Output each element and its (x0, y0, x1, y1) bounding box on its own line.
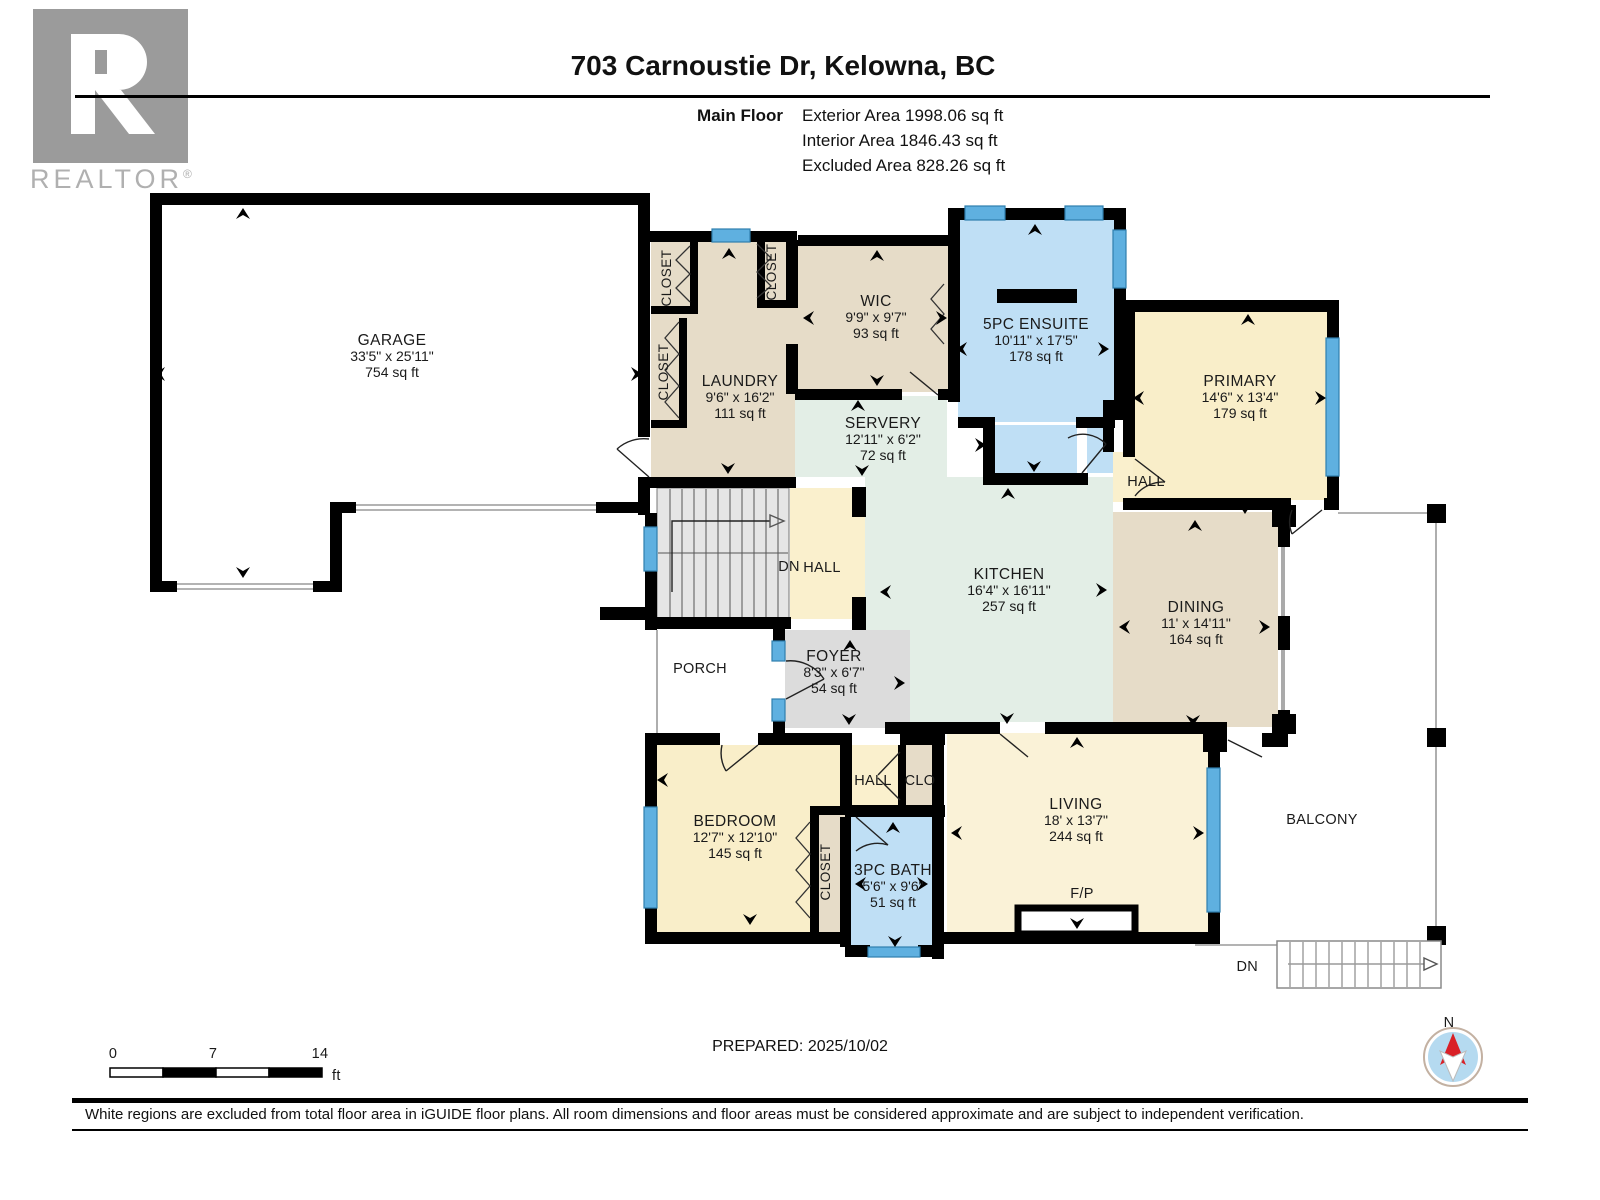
walls-shape (786, 344, 798, 394)
walls-shape (1103, 400, 1114, 452)
walls-shape (798, 235, 950, 246)
room-label-bedroom-shape: BEDROOM (694, 813, 777, 830)
room-label-servery-shape: SERVERY (845, 415, 921, 432)
walls-shape (638, 193, 650, 437)
room-label-servery-shape: 72 sq ft (860, 447, 906, 463)
walls-shape (1278, 616, 1290, 650)
label-dn-balcony: DN (1236, 959, 1258, 975)
walls-shape (845, 805, 945, 817)
scale-bar-shape (163, 1068, 216, 1077)
realtor-logo-text: REALTOR® (30, 164, 196, 195)
walls-shape (795, 389, 902, 400)
room-label-wic-shape: WIC (860, 293, 891, 310)
prepared-date: PREPARED: 2025/10/02 (0, 1038, 1600, 1056)
walls-shape (1272, 714, 1296, 734)
walls-shape (852, 597, 866, 630)
walls-shape (645, 477, 796, 488)
room-label-laundry-shape: 9'6" x 16'2" (706, 389, 775, 405)
room-label-foyer: FOYER 8'3" x 6'7" 54 sq ft (803, 648, 864, 696)
walls-shape (1208, 910, 1220, 944)
room-label-living-shape: 244 sq ft (1049, 828, 1103, 844)
walls-shape (150, 193, 650, 205)
walls-shape (885, 722, 1000, 734)
walls-shape (600, 607, 657, 620)
floor-label: Main Floor (483, 106, 783, 126)
walls-shape (1123, 498, 1291, 510)
room-label-primary-shape: PRIMARY (1203, 373, 1276, 390)
scale-bar-shape: ft (332, 1068, 341, 1084)
walls-shape (786, 240, 798, 302)
label-closet: CLOSET (659, 249, 674, 306)
room-label-bath-shape: 51 sq ft (870, 894, 916, 910)
scale-bar-shape (216, 1068, 269, 1077)
label-dn: DN (778, 559, 800, 575)
walls-shape (758, 733, 843, 745)
scale-bar-shape (110, 1068, 163, 1077)
walls-shape (1262, 733, 1288, 747)
realtor-logo-text-shape: REALTOR (30, 164, 183, 194)
registered-mark: ® (183, 167, 196, 181)
label-fireplace: F/P (1070, 886, 1093, 902)
walls-shape (651, 420, 687, 428)
walls-shape (1114, 208, 1126, 232)
label-closet: CLOSET (764, 243, 779, 300)
label-clo: CLO (905, 773, 936, 789)
walls-shape (150, 193, 162, 592)
window (1207, 768, 1220, 912)
footer-rule (72, 1098, 1528, 1103)
walls-shape (645, 617, 791, 629)
walls-shape (342, 502, 356, 513)
room-porch (657, 630, 775, 733)
walls-shape (1003, 208, 1067, 220)
label-porch: PORCH (673, 661, 727, 677)
room-label-bedroom-shape: 12'7" x 12'10" (693, 829, 778, 845)
label-hall-upper: HALL (1127, 474, 1164, 490)
walls-shape (773, 721, 785, 733)
room-label-primary-shape: 179 sq ft (1213, 405, 1267, 421)
walls-shape (948, 208, 960, 402)
label-balcony: BALCONY (1286, 812, 1357, 828)
window (1065, 206, 1103, 220)
room-label-ensuite-shape: 10'11" x 17'5" (994, 332, 1078, 348)
room-label-garage-shape: 754 sq ft (365, 364, 419, 380)
walls-shape (679, 318, 687, 424)
walls-shape (1281, 547, 1285, 616)
label-hall-stairs: HALL (803, 560, 840, 576)
footer-rule-bottom (72, 1129, 1528, 1131)
walls-shape (330, 502, 342, 592)
page-title: 703 Carnoustie Dr, Kelowna, BC (0, 50, 1566, 82)
disclaimer-text: White regions are excluded from total fl… (85, 1106, 1525, 1123)
walls-shape (845, 945, 870, 957)
window (644, 527, 657, 571)
realtor-logo-icon (33, 9, 188, 163)
label-closet: CLOSET (818, 843, 833, 900)
room-label-living-shape: LIVING (1049, 796, 1102, 813)
walls-shape (840, 817, 851, 947)
walls-shape (983, 473, 1088, 485)
room-label-dining-shape: 164 sq ft (1169, 631, 1223, 647)
walls-shape (852, 487, 866, 517)
walls-shape (1123, 300, 1339, 312)
interior-area-stat: Interior Area 1846.43 sq ft (802, 131, 998, 151)
room-label-kitchen-shape: KITCHEN (974, 566, 1045, 583)
exterior-area-stat: Exterior Area 1998.06 sq ft (802, 106, 1003, 126)
title-underline (75, 95, 1490, 98)
window (712, 229, 750, 242)
dining-balcony-door (1228, 740, 1262, 757)
window (644, 807, 657, 908)
walls-shape (1208, 733, 1220, 770)
room-label-kitchen-shape: 16'4" x 16'11" (967, 582, 1051, 598)
walls-shape (1324, 498, 1339, 510)
room-label-dining: DINING 11' x 14'11" 164 sq ft (1161, 599, 1231, 647)
room-label-laundry-shape: LAUNDRY (702, 373, 779, 390)
walls-shape (1327, 300, 1339, 340)
label-hall-lower: HALL (854, 773, 891, 789)
room-label-wic-shape: 93 sq ft (853, 325, 899, 341)
fireplace (1018, 908, 1135, 934)
walls-shape (932, 733, 944, 959)
walls-shape (645, 932, 847, 944)
room-label-laundry-shape: 111 sq ft (714, 405, 766, 421)
excluded-area-stat: Excluded Area 828.26 sq ft (802, 156, 1005, 176)
room-label-living-shape: 18' x 13'7" (1044, 812, 1108, 828)
room-label-primary-shape: 14'6" x 13'4" (1202, 389, 1279, 405)
floor-plan-page: GARAGE 33'5" x 25'11" 754 sq ft LAUNDRY … (0, 0, 1600, 1200)
room-label-foyer-shape: 54 sq ft (811, 680, 857, 696)
walls-shape (1272, 505, 1296, 527)
window (772, 641, 785, 661)
room-label-ensuite-shape: 5PC ENSUITE (983, 316, 1089, 333)
walls-shape (645, 745, 657, 809)
garage-doors-shape (356, 502, 596, 513)
realtor-logo-icon-shape-shape (71, 34, 95, 134)
room-label-ensuite-shape: 178 sq ft (1009, 348, 1063, 364)
room-label-servery-shape: 12'11" x 6'2" (845, 431, 921, 447)
room-label-kitchen-shape: 257 sq ft (982, 598, 1036, 614)
window (868, 947, 920, 957)
room-label-living: LIVING 18' x 13'7" 244 sq ft (1044, 796, 1108, 844)
room-label-garage-shape: 33'5" x 25'11" (350, 348, 434, 364)
window (772, 699, 785, 721)
floor-plan: GARAGE 33'5" x 25'11" 754 sq ft LAUNDRY … (0, 0, 1600, 1200)
room-label-wic-shape: 9'9" x 9'7" (845, 309, 906, 325)
room-label-dining-shape: DINING (1168, 599, 1225, 616)
walls-shape (1045, 722, 1205, 734)
garage-doors-shape (177, 581, 313, 592)
walls-shape (1123, 311, 1135, 457)
balcony-post (1427, 728, 1446, 747)
room-garage (160, 205, 640, 580)
room-label-garage-shape: GARAGE (358, 332, 427, 349)
walls-shape (645, 231, 714, 242)
balcony-post (1427, 504, 1446, 523)
room-label-dining-shape: 11' x 14'11" (1161, 615, 1231, 631)
walls-shape (840, 733, 852, 809)
window (1326, 338, 1339, 476)
walls-shape (150, 581, 177, 592)
walls-shape (690, 242, 698, 312)
room-label-bath-shape: 3PC BATH (854, 862, 932, 879)
room-label-bath-shape: 5'6" x 9'6" (862, 878, 923, 894)
walls-shape (1281, 650, 1285, 710)
walls-shape (773, 629, 785, 641)
window (965, 206, 1005, 220)
realtor-logo-icon-shape (33, 9, 188, 163)
scale-bar-shape (269, 1068, 322, 1077)
room-label-foyer-shape: 8'3" x 6'7" (803, 664, 864, 680)
walls-shape (918, 945, 938, 957)
ensuite-vanity (997, 289, 1077, 303)
room-label-bedroom-shape: 145 sq ft (708, 845, 762, 861)
walls-shape (645, 733, 720, 745)
room-label-foyer-shape: FOYER (806, 648, 861, 665)
window (1113, 230, 1126, 288)
label-closet: CLOSET (656, 343, 671, 400)
